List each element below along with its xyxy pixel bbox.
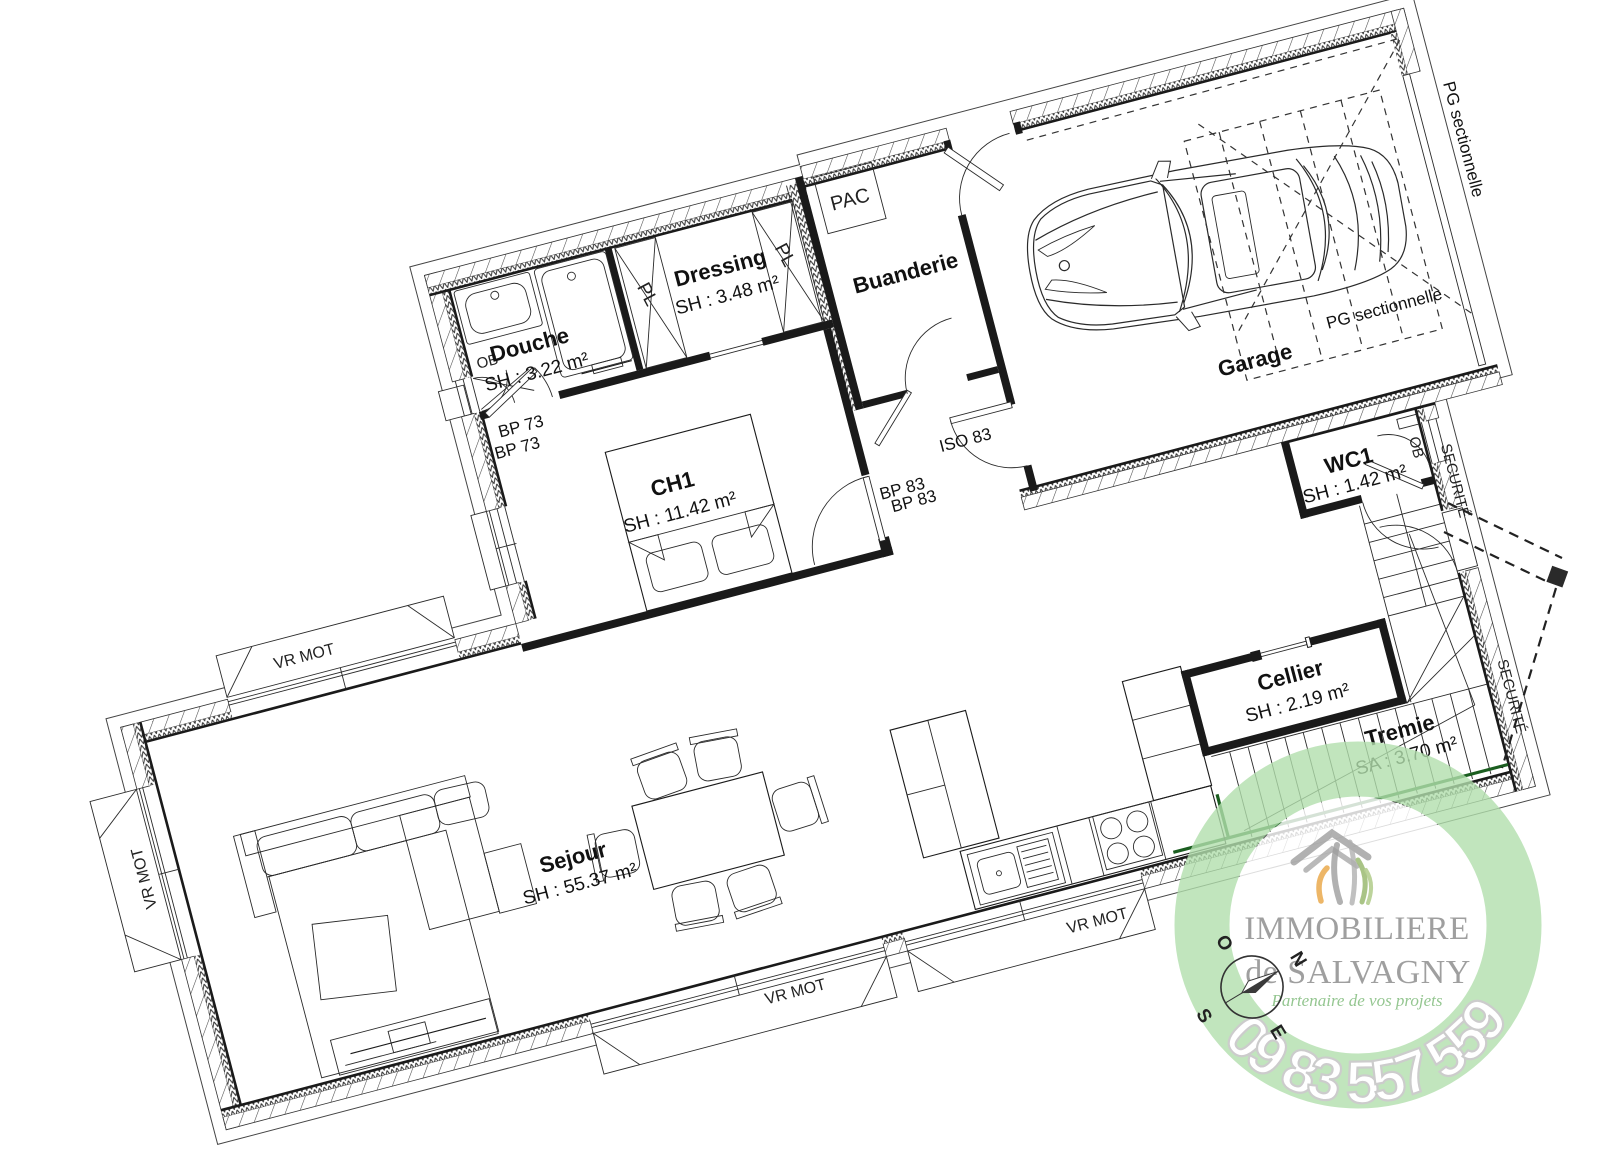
- svg-text:IMMOBILIERE: IMMOBILIERE: [1244, 911, 1469, 947]
- svg-text:Partenaire de vos projets: Partenaire de vos projets: [1270, 991, 1442, 1010]
